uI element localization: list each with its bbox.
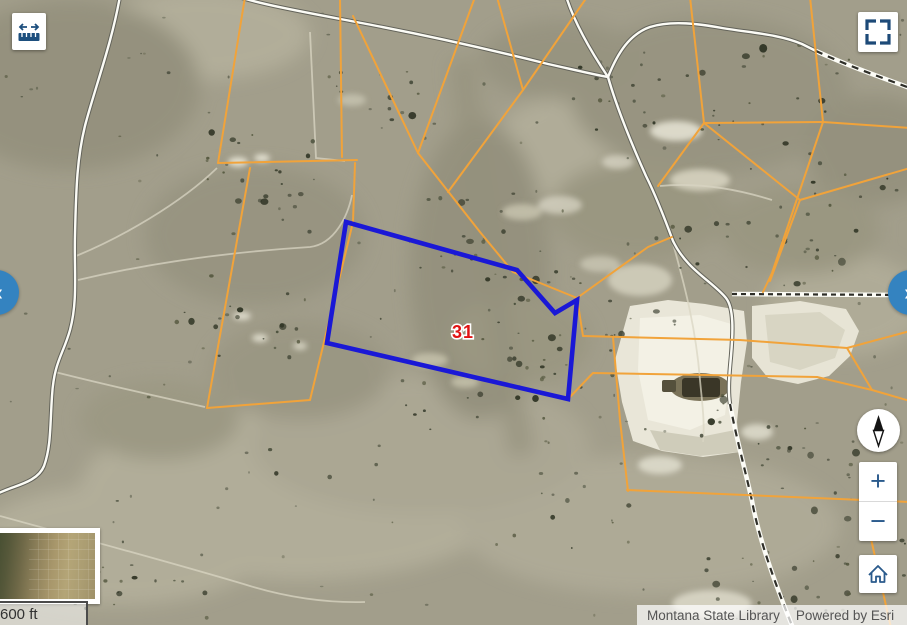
parcel-label: 31 <box>452 322 474 342</box>
overview-map[interactable] <box>0 528 100 604</box>
plus-icon: + <box>870 466 886 497</box>
zoom-controls: + − <box>859 462 897 541</box>
minus-icon: − <box>870 506 886 537</box>
fullscreen-button[interactable] <box>858 12 898 52</box>
powered-by-esri-link[interactable]: Powered by Esri <box>796 608 894 623</box>
overview-map-image <box>0 533 95 599</box>
compass-needle-icon <box>857 409 900 452</box>
map-canvas[interactable]: 31 <box>0 0 907 625</box>
home-extent-button[interactable] <box>859 555 897 593</box>
compass-button[interactable] <box>857 409 900 452</box>
home-icon <box>859 555 897 593</box>
zoom-in-button[interactable]: + <box>859 462 897 502</box>
attribution-bar: Montana State Library Powered by Esri <box>637 605 907 625</box>
zoom-out-button[interactable]: − <box>859 502 897 541</box>
collapse-left-icon: « <box>0 279 3 306</box>
scale-bar-label: 600 ft <box>0 603 86 623</box>
fullscreen-icon <box>858 12 898 52</box>
map-application-window: 31 <box>0 0 907 625</box>
measure-tool-button[interactable] <box>12 13 46 50</box>
overview-map-grid-texture <box>29 533 95 599</box>
scale-bar: 600 ft <box>0 601 88 625</box>
measure-distance-icon <box>16 19 42 45</box>
attribution-sources: Montana State Library <box>647 608 780 623</box>
